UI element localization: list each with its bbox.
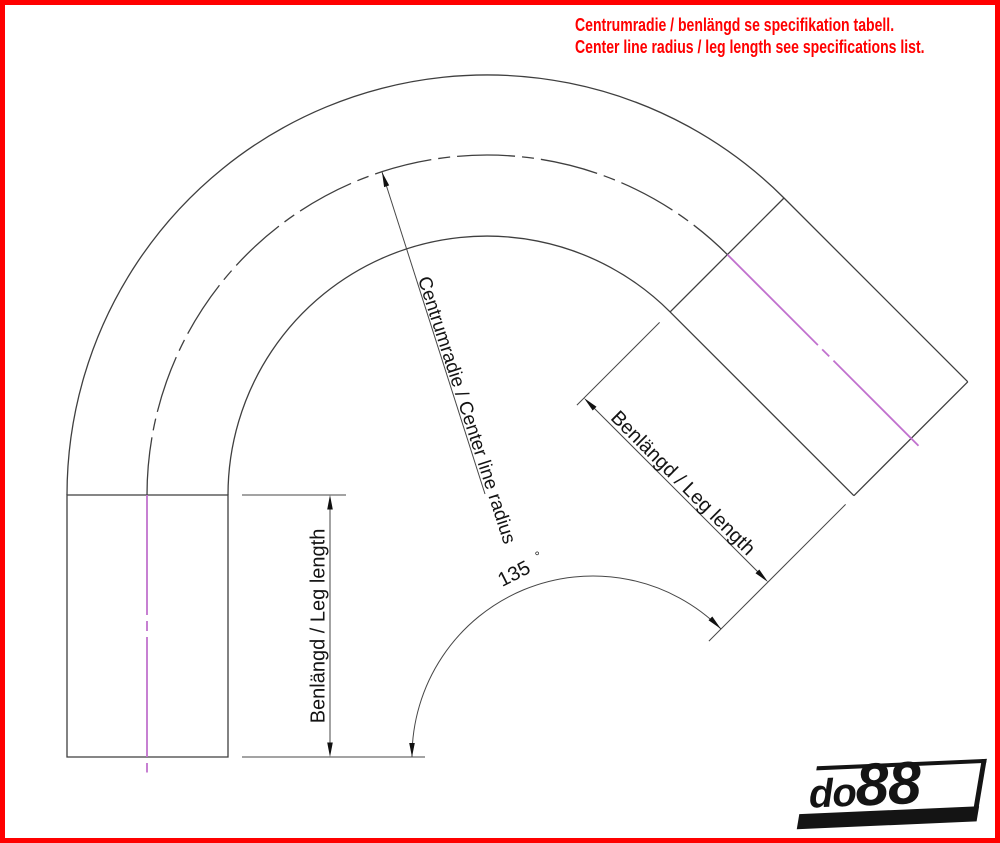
centerline-right-leg	[727, 255, 918, 446]
left-leg-dimension: Benlängd / Leg length	[242, 495, 425, 757]
arrowhead-down	[327, 743, 333, 758]
drawing-sheet: Centrumradie / benlängd se specifikation…	[0, 0, 1000, 843]
left-leg-dimension-label: Benlängd / Leg length	[308, 529, 330, 724]
logo-text: do88	[807, 748, 922, 822]
right-leg-dimension-label: Benlängd / Leg length	[606, 407, 759, 560]
radius-dimension-label: Centrumradie / Center line radius	[413, 274, 519, 547]
arrowhead-angle-left	[409, 743, 415, 757]
angle-label: 135 °	[493, 548, 548, 592]
radius-dimension: Centrumradie / Center line radius	[382, 172, 519, 547]
arrowhead-angle-right	[709, 617, 722, 630]
angle-dimension: 135 °	[409, 548, 721, 757]
logo-text-88: 88	[854, 748, 922, 820]
arrowhead-up	[327, 495, 333, 510]
logo-text-do: do	[808, 770, 857, 818]
pipe-outer-edge	[67, 75, 968, 495]
pipe-inner-edge	[228, 236, 854, 496]
right-leg-dimension: Benlängd / Leg length	[577, 322, 846, 641]
do88-logo: do88	[793, 749, 993, 843]
arrowhead-radius	[382, 172, 389, 187]
angle-arc	[412, 576, 721, 757]
pipe-bend-diagram: Benlängd / Leg length Benlängd / Leg len…	[5, 5, 1000, 843]
extension-line	[577, 322, 660, 405]
